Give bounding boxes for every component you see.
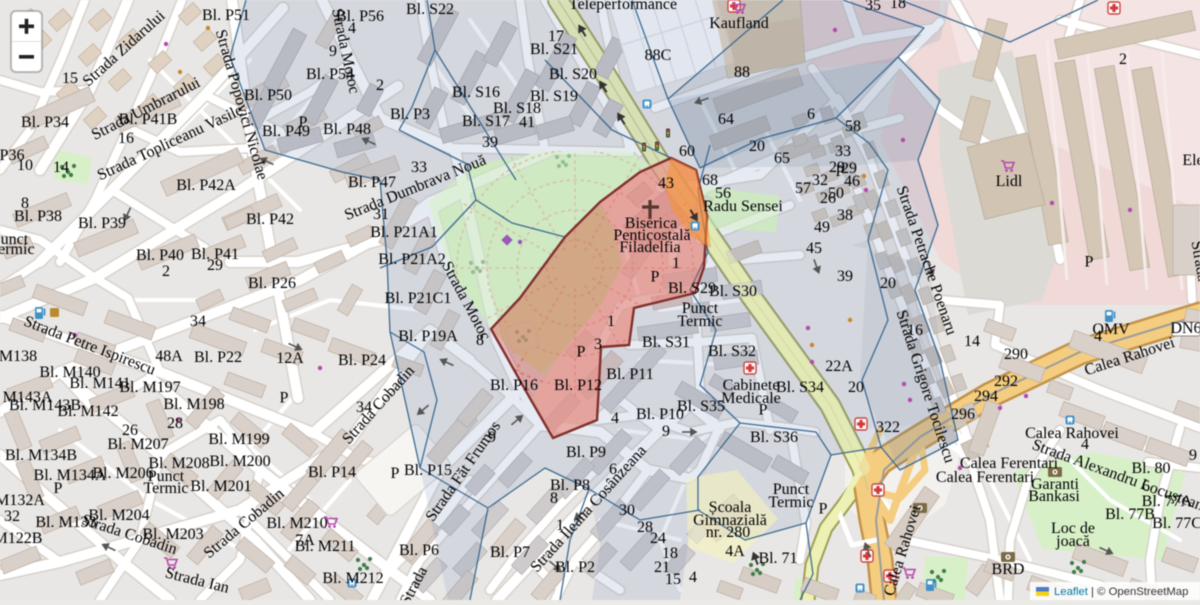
svg-text:Leaflet | © OpenStreetMap: Leaflet | © OpenStreetMap <box>1054 586 1188 598</box>
svg-text:Bl. M134A: Bl. M134A <box>34 467 107 484</box>
svg-text:Bl. 77B: Bl. 77B <box>1105 506 1155 523</box>
svg-text:322: 322 <box>876 419 900 436</box>
svg-text:14: 14 <box>53 159 69 176</box>
svg-text:Bl. M197: Bl. M197 <box>119 379 180 396</box>
svg-text:8: 8 <box>21 195 29 212</box>
svg-text:Bl. S34: Bl. S34 <box>776 379 824 396</box>
svg-text:12A: 12A <box>276 350 304 367</box>
svg-text:88C: 88C <box>645 47 672 64</box>
svg-text:Bl. M210: Bl. M210 <box>266 515 327 532</box>
svg-text:Filadelfia: Filadelfia <box>619 239 680 256</box>
svg-text:M122B: M122B <box>0 530 42 547</box>
svg-text:18: 18 <box>890 0 906 12</box>
svg-text:34: 34 <box>190 313 206 330</box>
svg-text:Bl. S31: Bl. S31 <box>642 334 690 351</box>
svg-text:Bl. S36: Bl. S36 <box>750 429 798 446</box>
svg-text:Bl. P21C1: Bl. P21C1 <box>385 290 452 307</box>
svg-text:4: 4 <box>611 410 619 427</box>
svg-text:M132A: M132A <box>0 492 45 509</box>
svg-text:29: 29 <box>207 257 223 274</box>
svg-text:294: 294 <box>974 388 998 405</box>
svg-text:60: 60 <box>679 143 695 160</box>
svg-text:Bl. P16: Bl. P16 <box>490 377 538 394</box>
svg-text:joacă: joacă <box>1055 533 1090 550</box>
svg-text:33: 33 <box>835 143 851 160</box>
svg-text:1: 1 <box>672 255 680 272</box>
svg-text:P: P <box>1085 253 1094 270</box>
svg-text:P: P <box>280 390 289 407</box>
svg-text:3: 3 <box>594 336 602 353</box>
svg-text:88: 88 <box>734 64 750 81</box>
svg-text:39: 39 <box>482 134 498 151</box>
svg-text:P: P <box>651 269 660 286</box>
svg-text:Bl. P11: Bl. P11 <box>606 366 653 383</box>
svg-text:32: 32 <box>812 172 828 189</box>
svg-text:BRD: BRD <box>992 561 1025 578</box>
svg-text:Bl. P49: Bl. P49 <box>262 123 310 140</box>
svg-text:DN6: DN6 <box>1170 320 1200 337</box>
svg-text:4A: 4A <box>725 543 745 560</box>
svg-text:1: 1 <box>607 313 615 330</box>
svg-text:Bl. P42: Bl. P42 <box>246 211 294 228</box>
svg-text:20: 20 <box>749 138 765 155</box>
svg-text:Bl. P9: Bl. P9 <box>566 444 606 461</box>
svg-text:Bankasi: Bankasi <box>1028 488 1080 505</box>
svg-text:Bl. P50: Bl. P50 <box>244 87 292 104</box>
svg-text:8: 8 <box>550 490 558 507</box>
svg-text:65: 65 <box>774 150 790 167</box>
svg-text:39: 39 <box>837 268 853 285</box>
svg-text:Medicale: Medicale <box>721 390 781 407</box>
svg-text:296: 296 <box>951 406 975 423</box>
svg-text:Bl. P6: Bl. P6 <box>399 542 439 559</box>
svg-text:20: 20 <box>880 275 896 292</box>
svg-text:Calea Ferentari: Calea Ferentari <box>936 469 1035 486</box>
svg-text:Termic: Termic <box>0 241 35 258</box>
svg-text:P: P <box>577 344 586 361</box>
svg-text:43: 43 <box>658 175 674 192</box>
svg-text:15: 15 <box>62 70 78 87</box>
svg-text:Teleperformance: Teleperformance <box>569 0 677 13</box>
svg-text:15: 15 <box>665 571 681 588</box>
svg-text:Bl. P39: Bl. P39 <box>78 215 126 232</box>
svg-text:35: 35 <box>865 0 881 14</box>
svg-text:20: 20 <box>848 379 864 396</box>
svg-text:10: 10 <box>17 157 33 174</box>
svg-text:Ele: Ele <box>1182 152 1200 169</box>
svg-text:Bl. S35: Bl. S35 <box>677 398 725 415</box>
svg-text:28: 28 <box>167 415 183 432</box>
svg-text:9: 9 <box>662 423 670 440</box>
svg-text:14: 14 <box>964 333 980 350</box>
svg-text:Bl. P14: Bl. P14 <box>308 464 356 481</box>
svg-text:Bl. P12: Bl. P12 <box>554 377 602 394</box>
svg-text:Bl. P2: Bl. P2 <box>555 559 595 576</box>
svg-text:Bl. S32: Bl. S32 <box>708 343 756 360</box>
svg-text:nr. 280: nr. 280 <box>706 524 750 541</box>
svg-text:16: 16 <box>118 130 134 147</box>
svg-text:41: 41 <box>519 114 535 131</box>
svg-text:17: 17 <box>548 28 564 45</box>
svg-text:Bl. M198: Bl. M198 <box>163 396 224 413</box>
svg-text:2: 2 <box>1119 51 1127 68</box>
svg-text:Termic: Termic <box>768 494 813 511</box>
svg-text:38: 38 <box>837 207 853 224</box>
svg-text:290: 290 <box>1004 346 1028 363</box>
svg-text:Bl. P7: Bl. P7 <box>490 544 530 561</box>
svg-text:Bl. M142: Bl. M142 <box>57 403 118 420</box>
svg-text:Bl. P21A1: Bl. P21A1 <box>370 224 438 241</box>
svg-text:Bl. S20: Bl. S20 <box>549 66 597 83</box>
svg-text:Lidl: Lidl <box>996 173 1023 190</box>
svg-text:Bl. S16: Bl. S16 <box>452 84 500 101</box>
svg-text:Bl. M207: Bl. M207 <box>107 436 168 453</box>
svg-text:P: P <box>391 465 400 482</box>
svg-text:Bl. S17: Bl. S17 <box>462 113 510 130</box>
svg-text:Bl. P26: Bl. P26 <box>248 275 296 292</box>
svg-text:Bl. M212: Bl. M212 <box>322 570 383 587</box>
svg-text:Bl. P22: Bl. P22 <box>194 349 242 366</box>
svg-text:Termic: Termic <box>677 313 722 330</box>
svg-text:30: 30 <box>619 502 635 519</box>
svg-text:Kaufland: Kaufland <box>709 15 769 32</box>
svg-text:45: 45 <box>806 240 822 257</box>
svg-text:Bl. P42A: Bl. P42A <box>176 177 236 194</box>
svg-text:26: 26 <box>820 190 836 207</box>
svg-text:M138: M138 <box>0 348 37 365</box>
svg-text:9: 9 <box>1189 447 1197 464</box>
svg-text:Bl. P19A: Bl. P19A <box>398 328 458 345</box>
svg-text:Bl. M201: Bl. M201 <box>190 478 251 495</box>
svg-text:33: 33 <box>411 159 427 176</box>
svg-text:Bl. P34: Bl. P34 <box>21 114 69 131</box>
svg-text:Bl. M200: Bl. M200 <box>209 453 270 470</box>
svg-text:57: 57 <box>795 180 811 197</box>
svg-text:Bl. P40: Bl. P40 <box>136 247 184 264</box>
svg-text:Termic: Termic <box>143 480 188 497</box>
svg-text:26: 26 <box>122 422 138 439</box>
svg-text:Bl. S22: Bl. S22 <box>406 1 454 18</box>
svg-text:Bl. P15: Bl. P15 <box>404 462 452 479</box>
svg-text:46: 46 <box>844 173 860 190</box>
svg-text:P: P <box>819 500 828 517</box>
svg-text:58: 58 <box>845 118 861 135</box>
svg-text:Bl. M199: Bl. M199 <box>208 431 269 448</box>
svg-text:6: 6 <box>807 106 815 123</box>
svg-text:32: 32 <box>4 508 20 525</box>
svg-text:4: 4 <box>1094 328 1102 345</box>
svg-text:Bl. 77C: Bl. 77C <box>1152 515 1200 532</box>
svg-text:4: 4 <box>689 569 697 586</box>
svg-text:Bl. P24: Bl. P24 <box>338 352 386 369</box>
svg-text:2: 2 <box>376 77 384 94</box>
svg-text:2: 2 <box>162 263 170 280</box>
svg-text:Bl. P51: Bl. P51 <box>202 7 250 24</box>
svg-text:64: 64 <box>718 111 734 128</box>
svg-text:Bl. 71: Bl. 71 <box>758 550 797 567</box>
svg-text:49: 49 <box>814 219 830 236</box>
svg-text:29: 29 <box>829 159 845 176</box>
svg-text:56: 56 <box>715 185 731 202</box>
svg-text:Bl. P21A2: Bl. P21A2 <box>378 251 446 268</box>
svg-text:Bl. P48: Bl. P48 <box>323 121 371 138</box>
svg-text:48A: 48A <box>155 348 183 365</box>
svg-text:Bl. S30: Bl. S30 <box>709 283 757 300</box>
svg-text:Bl. P3: Bl. P3 <box>390 106 430 123</box>
svg-text:Bl. M134B: Bl. M134B <box>5 447 77 464</box>
svg-text:22A: 22A <box>825 358 853 375</box>
svg-text:7A: 7A <box>295 532 315 549</box>
svg-text:4: 4 <box>1081 436 1089 453</box>
